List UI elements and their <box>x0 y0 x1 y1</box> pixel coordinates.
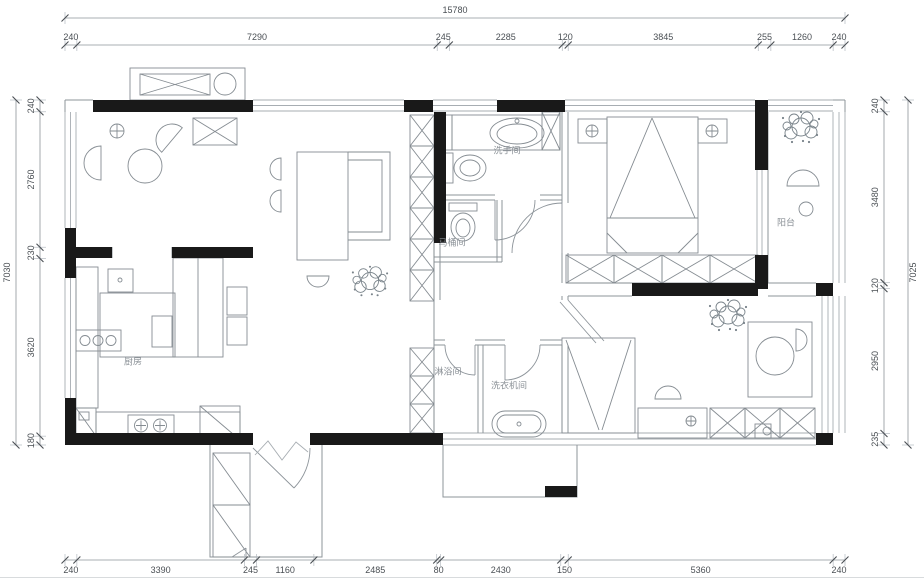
stove-symbol <box>76 330 121 351</box>
svg-text:240: 240 <box>832 565 847 575</box>
plant-symbol <box>709 299 747 331</box>
armchair-symbol <box>84 146 101 180</box>
svg-text:240: 240 <box>63 32 78 42</box>
svg-text:245: 245 <box>436 32 451 42</box>
porch-door-mark <box>232 548 246 557</box>
desk-symbol <box>638 408 707 438</box>
svg-text:1160: 1160 <box>276 565 295 575</box>
svg-text:240: 240 <box>63 565 78 575</box>
dining-chair-symbol <box>270 158 281 180</box>
floor-plan-sheet: 1578024072902452285120384525512602402403… <box>0 0 924 581</box>
bedroom1-door <box>512 203 562 253</box>
room-label-shower: 淋浴间 <box>434 365 461 378</box>
svg-text:7290: 7290 <box>247 32 267 42</box>
sofa-symbol <box>348 152 390 240</box>
svg-text:240: 240 <box>870 98 880 113</box>
svg-text:120: 120 <box>870 278 880 293</box>
cabinet-small-box <box>755 424 771 438</box>
round-table-symbol <box>128 149 162 183</box>
svg-text:2285: 2285 <box>496 32 516 42</box>
study-table <box>748 322 812 397</box>
svg-text:240: 240 <box>26 98 36 113</box>
svg-text:120: 120 <box>558 32 573 42</box>
structural-walls <box>65 100 833 497</box>
svg-text:2760: 2760 <box>26 169 36 189</box>
room-label-balcony: 阳台 <box>777 216 795 229</box>
floor-plan-drawing: 1578024072902452285120384525512602402403… <box>0 0 924 581</box>
svg-text:3480: 3480 <box>870 187 880 207</box>
laundry-door <box>505 345 540 380</box>
svg-text:2485: 2485 <box>365 565 385 575</box>
dimension-annotations: 1578024072902452285120384525512602402403… <box>2 5 918 575</box>
plant-symbol <box>352 266 388 297</box>
svg-text:240: 240 <box>832 32 847 42</box>
svg-text:230: 230 <box>26 245 36 260</box>
balcony-chair-symbol <box>787 170 819 216</box>
svg-text:5360: 5360 <box>691 565 711 575</box>
bedroom2-door <box>560 300 604 343</box>
svg-text:2430: 2430 <box>491 565 511 575</box>
svg-text:255: 255 <box>757 32 772 42</box>
ceiling-light-symbol <box>110 124 124 138</box>
svg-text:3390: 3390 <box>151 565 171 575</box>
nightstand-symbol <box>698 119 727 143</box>
svg-text:7025: 7025 <box>908 262 918 282</box>
svg-text:150: 150 <box>557 565 572 575</box>
dining-table-symbol <box>297 152 348 260</box>
corner-unit <box>76 408 96 436</box>
kitchen-counter <box>76 258 247 436</box>
armchair-angled-symbol <box>149 117 182 152</box>
svg-text:7030: 7030 <box>2 262 12 282</box>
svg-text:235: 235 <box>870 432 880 447</box>
door-swings <box>232 200 604 557</box>
nightstand-symbol <box>578 119 607 143</box>
kitchen-sink-symbol <box>128 415 174 436</box>
entry-door <box>253 448 310 488</box>
svg-text:245: 245 <box>243 565 258 575</box>
svg-text:15780: 15780 <box>442 5 467 15</box>
svg-text:80: 80 <box>434 565 444 575</box>
svg-text:180: 180 <box>26 433 36 448</box>
dining-chair-symbol <box>307 276 329 287</box>
bed-symbol <box>607 117 698 253</box>
room-label-toilet: 马桶间 <box>438 236 465 249</box>
furniture <box>76 68 820 557</box>
toilet-symbol <box>444 153 486 183</box>
svg-text:3845: 3845 <box>653 32 673 42</box>
svg-text:1260: 1260 <box>792 32 812 42</box>
room-label-washroom: 洗手间 <box>493 144 520 157</box>
desk-chair-symbol <box>655 386 681 399</box>
plant-symbol <box>782 111 820 143</box>
bed-symbol <box>562 338 635 433</box>
dining-chair-symbol <box>270 190 281 212</box>
svg-text:2950: 2950 <box>870 351 880 371</box>
shoe-cabinet <box>213 453 250 557</box>
room-label-laundry: 洗衣机间 <box>491 379 527 392</box>
room-label-kitchen: 厨房 <box>124 355 142 368</box>
partition-walls <box>65 100 845 557</box>
washroom-door <box>495 200 535 240</box>
svg-text:3620: 3620 <box>26 337 36 357</box>
